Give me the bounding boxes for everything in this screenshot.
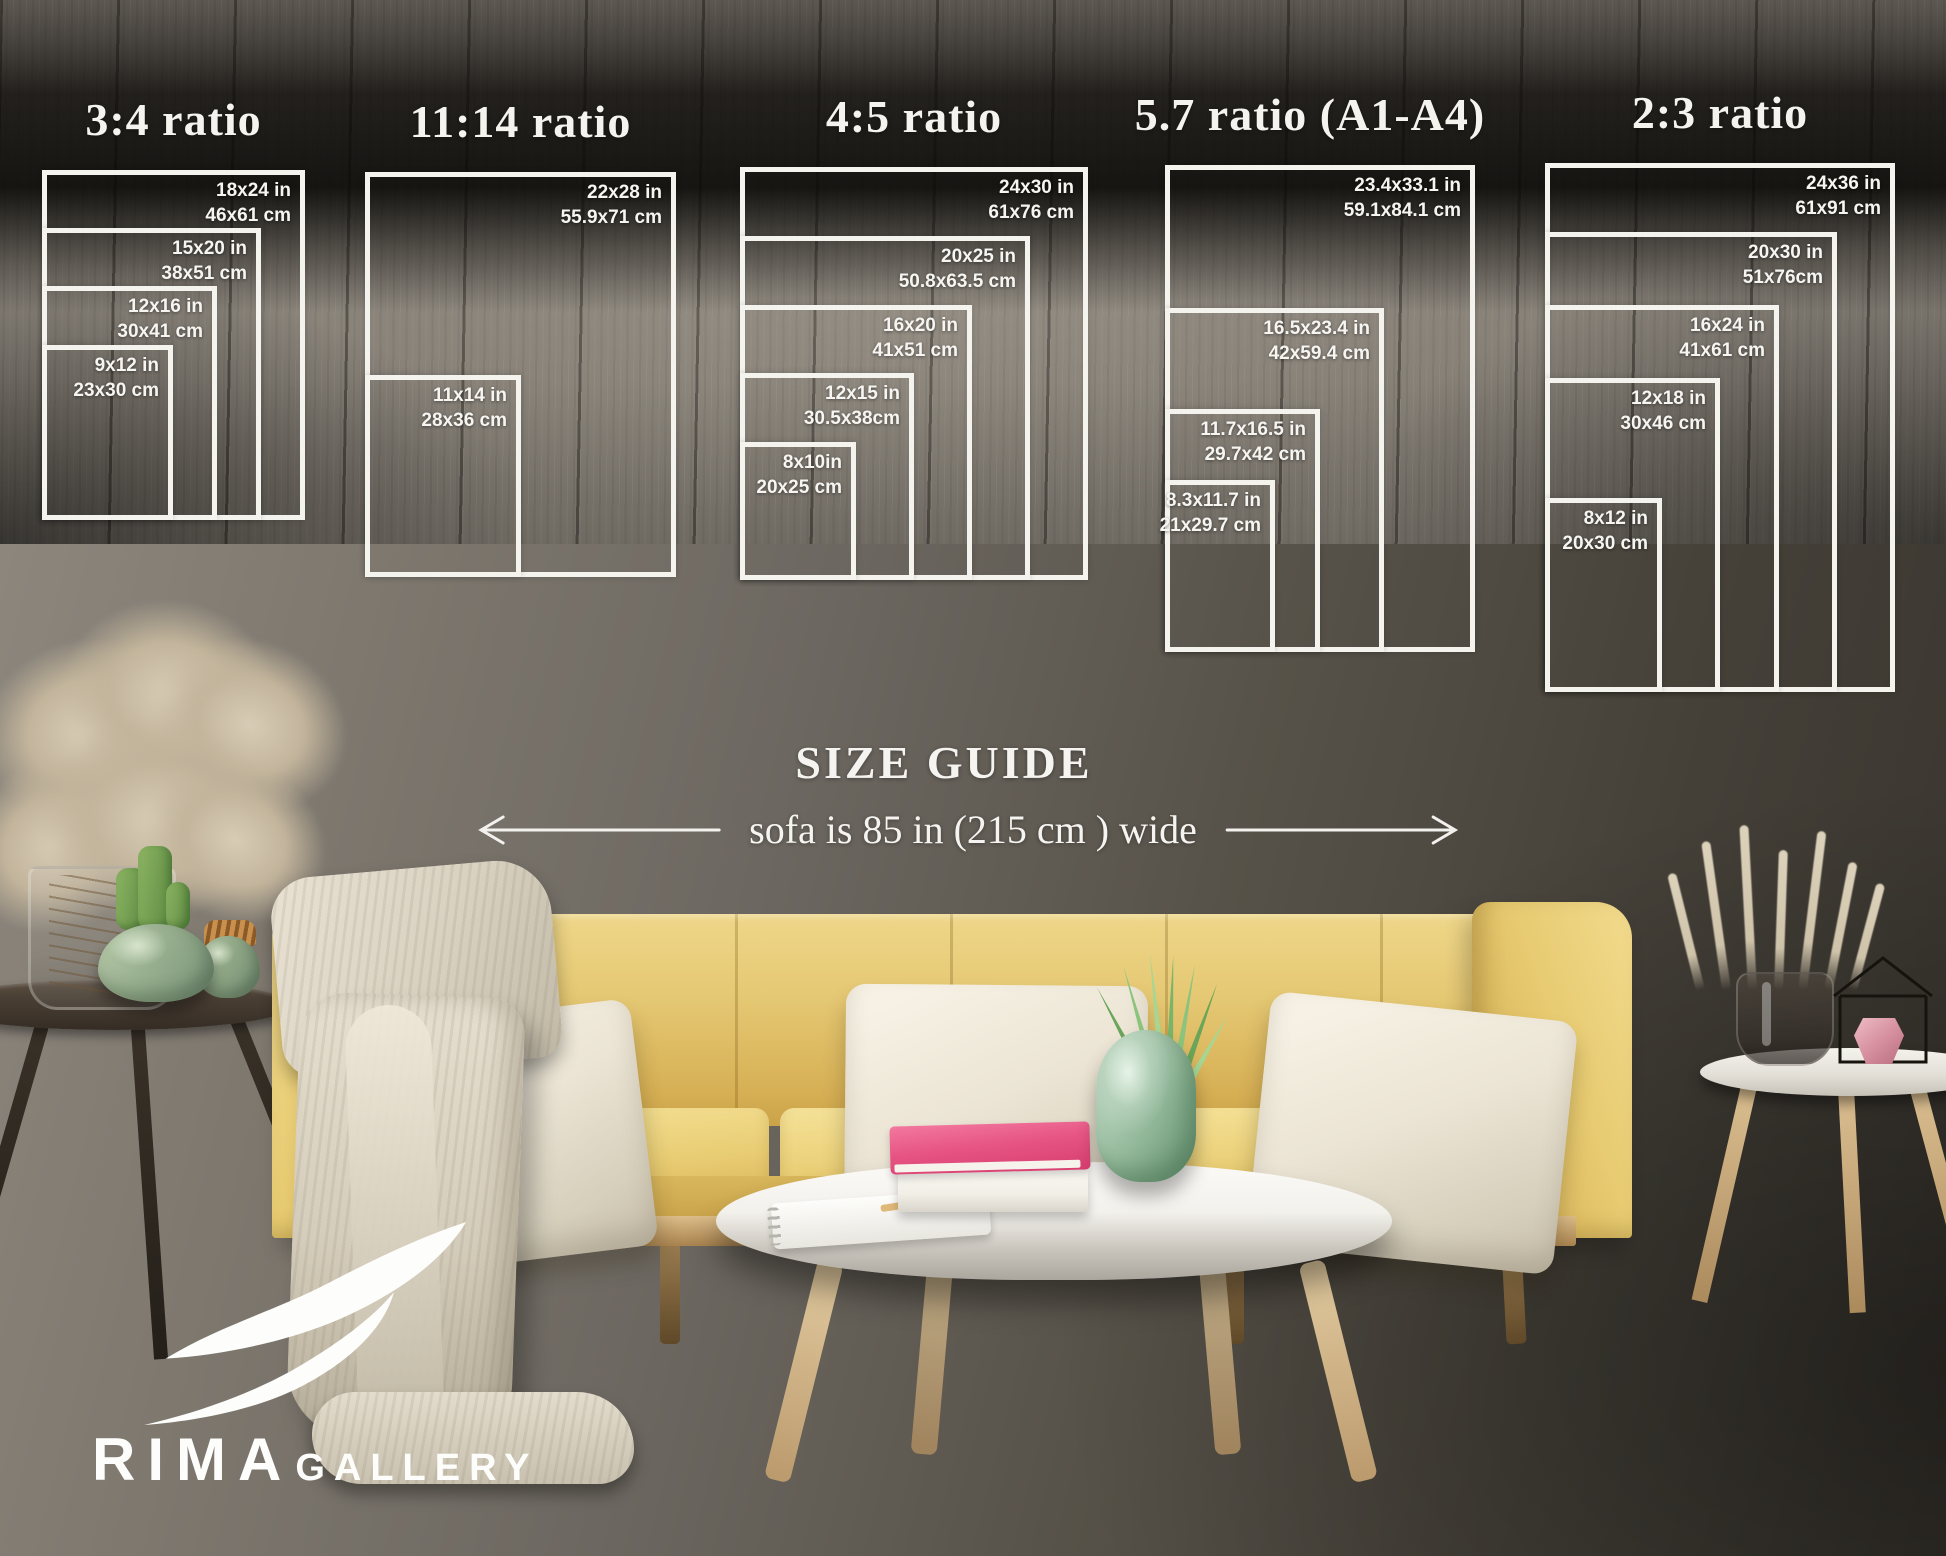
- coffee-table-leg: [1298, 1259, 1378, 1484]
- brand-name-primary: RIMA: [92, 1425, 293, 1494]
- coffee-table-leg: [764, 1259, 844, 1484]
- pink-book: [889, 1121, 1090, 1174]
- brand-logo: RIMAGALLERY: [92, 1222, 538, 1494]
- logo-swoosh-icon: [140, 1222, 480, 1427]
- brand-name: RIMAGALLERY: [92, 1425, 538, 1494]
- coffee-table-leg: [1198, 1254, 1241, 1456]
- green-glass-vase: [1096, 1030, 1196, 1182]
- white-book: [898, 1168, 1088, 1212]
- brand-name-secondary: GALLERY: [295, 1447, 538, 1490]
- size-guide-scene: 3:4 ratio18x24 in46x61 cm15x20 in38x51 c…: [0, 0, 1946, 1556]
- coffee-table-leg: [911, 1254, 954, 1456]
